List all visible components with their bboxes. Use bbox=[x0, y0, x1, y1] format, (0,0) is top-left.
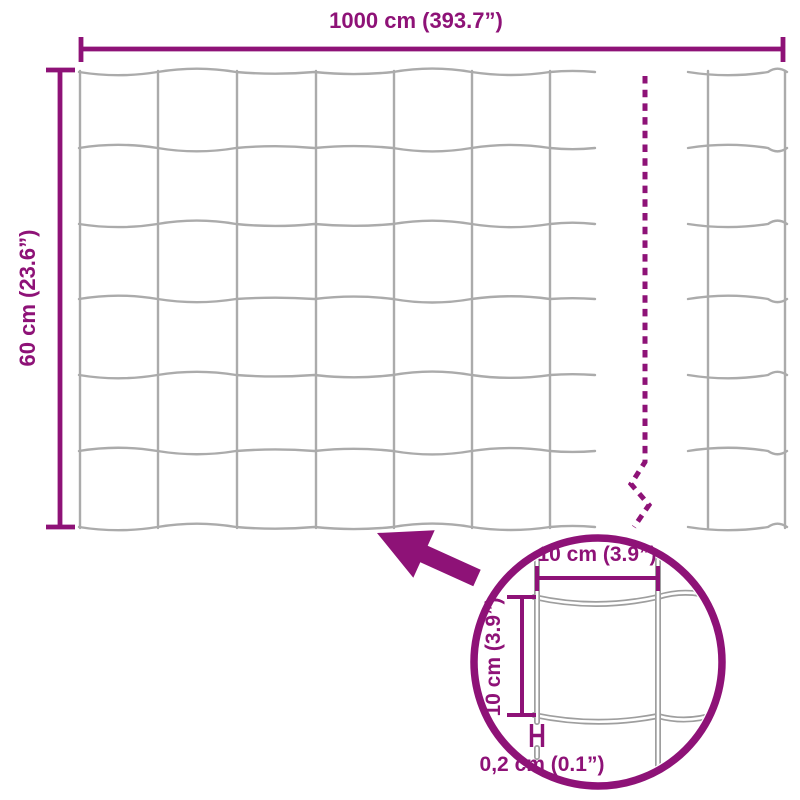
fence-wire bbox=[688, 372, 787, 379]
fence-wire bbox=[688, 296, 787, 303]
mesh-detail-view: 10 cm (3.9”) 10 cm (3.9”) 0,2 cm (0.1”) bbox=[474, 538, 722, 786]
fence-wire bbox=[688, 524, 787, 531]
detail-width-label: 10 cm (3.9”) bbox=[537, 543, 656, 566]
fence-wire bbox=[688, 69, 787, 76]
width-dimension: 1000 cm (393.7”) bbox=[81, 8, 783, 62]
fence-wire bbox=[79, 145, 595, 152]
diagram-canvas: 1000 cm (393.7”) 60 cm (23.6”) bbox=[0, 0, 800, 800]
fence-wire bbox=[79, 221, 595, 228]
width-dimension-line bbox=[81, 37, 783, 62]
height-dimension: 60 cm (23.6”) bbox=[15, 70, 75, 527]
magnifier-arrow-icon bbox=[377, 530, 481, 586]
fence-wire bbox=[79, 69, 595, 76]
width-dimension-label: 1000 cm (393.7”) bbox=[329, 8, 503, 33]
fence-wire bbox=[688, 145, 787, 152]
height-dimension-line bbox=[46, 70, 75, 527]
fence-wire bbox=[79, 372, 595, 379]
break-indicator-line bbox=[631, 76, 649, 527]
detail-height-label: 10 cm (3.9”) bbox=[482, 597, 505, 716]
fence-mesh bbox=[79, 69, 787, 531]
fence-wire bbox=[79, 448, 595, 455]
magnifier-circle-icon bbox=[474, 538, 722, 786]
wire-thickness-label: 0,2 cm (0.1”) bbox=[480, 753, 605, 776]
fence-wire bbox=[79, 296, 595, 303]
height-dimension-label: 60 cm (23.6”) bbox=[15, 230, 40, 367]
product-dimension-diagram: 1000 cm (393.7”) 60 cm (23.6”) bbox=[0, 0, 800, 800]
fence-wire bbox=[688, 221, 787, 228]
fence-wire bbox=[688, 448, 787, 455]
fence-wire bbox=[79, 524, 595, 531]
